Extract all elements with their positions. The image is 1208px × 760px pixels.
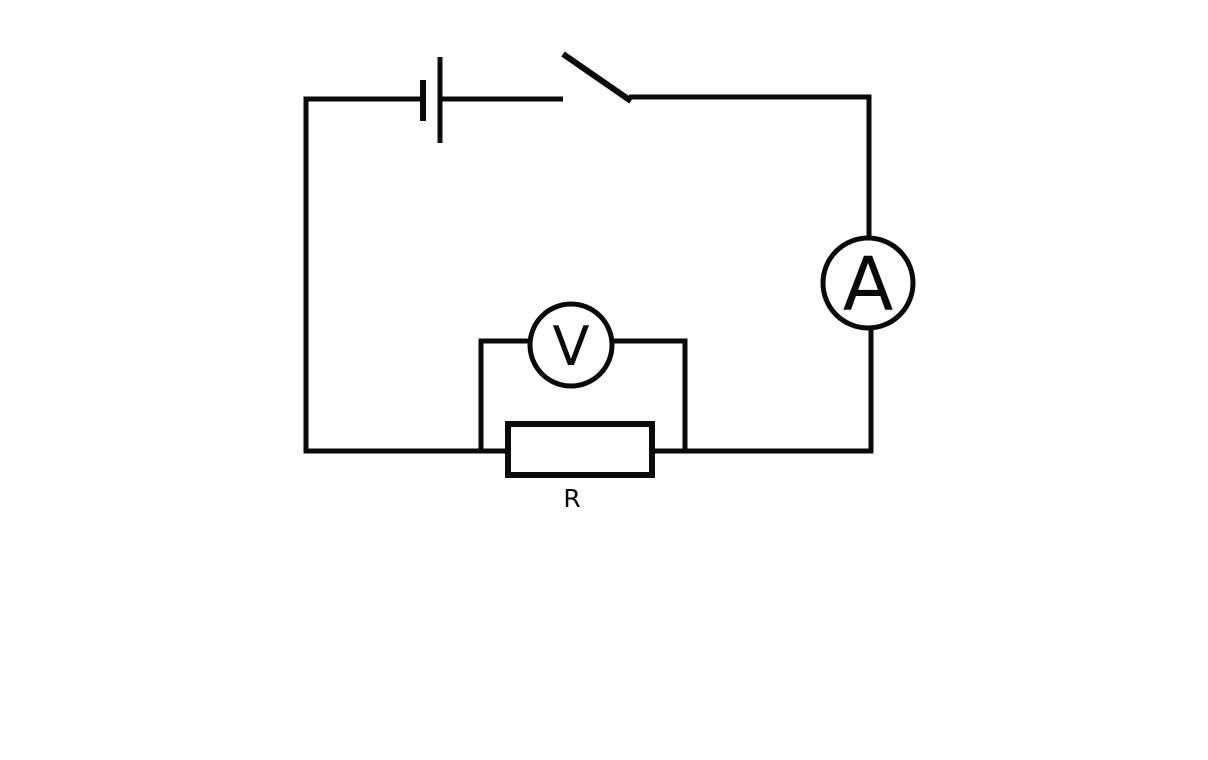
ammeter-label: A (843, 242, 894, 328)
voltmeter-label: V (553, 315, 590, 378)
battery-cell-icon (423, 57, 440, 143)
circuit-diagram-canvas: A V R (0, 0, 1208, 760)
resistor-icon: R (508, 424, 652, 513)
voltmeter-icon: V (530, 304, 612, 386)
wire-bottom-right (648, 326, 871, 451)
ammeter-icon: A (823, 238, 913, 328)
open-switch-icon (563, 54, 631, 101)
resistor-label: R (563, 484, 580, 513)
wire-top-right (629, 97, 869, 240)
circuit-diagram: A V R (0, 0, 1208, 760)
resistor-box (508, 424, 652, 475)
